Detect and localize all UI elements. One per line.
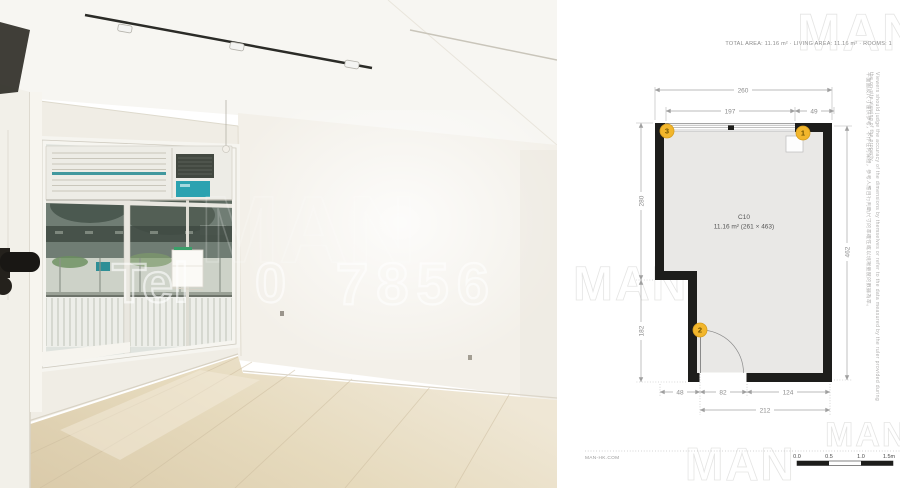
dim-label: 49	[810, 109, 818, 116]
marker-number: 3	[665, 127, 669, 136]
site-label: MAN-HK.COM	[585, 455, 619, 461]
scale-tick-label: 0.0	[793, 454, 801, 460]
scale-bar: 0.0 0.5 1.0 1.5m	[793, 454, 895, 466]
scale-tick-label: 1.5m	[883, 454, 896, 460]
floorplan-drawing: MAN MAN MAN MAN	[557, 0, 900, 488]
logo-watermark: MAN	[825, 416, 900, 454]
cabinet-top-item	[174, 247, 192, 250]
dim-label: 48	[676, 390, 684, 397]
teal-sign	[96, 262, 110, 271]
room-photo: Tel 0 7856 MAN	[0, 0, 557, 488]
floorplan-panel: TOTAL AREA: 11.16 m² · LIVING AREA: 11.1…	[557, 0, 900, 488]
dim-label: 197	[725, 109, 736, 116]
dim-label: 260	[738, 88, 749, 95]
dim-label: 280	[638, 195, 645, 206]
dim-label: 124	[783, 390, 794, 397]
dim-label: 212	[760, 408, 771, 415]
property-listing-image: Tel 0 7856 MAN TOTAL AREA: 11.16 m² · LI…	[0, 0, 900, 488]
disclaimer-text-zh: 平面圖及尺寸僅供參考，不作任何保證，參考人應自行判斷尺寸的準確性或以現場量度的數…	[865, 72, 871, 410]
marker-number: 2	[698, 326, 702, 335]
ac-teal-stripe	[52, 172, 166, 175]
door-jamb	[30, 92, 42, 412]
scale-tick-label: 0.5	[825, 454, 833, 460]
wall-corner-shade	[520, 150, 557, 400]
dim-label: 462	[844, 246, 851, 257]
logo-watermark: MAN	[685, 438, 796, 488]
dim-label: 182	[638, 325, 645, 336]
plan-window	[665, 123, 795, 131]
window-mullion-tick	[728, 126, 734, 131]
marker-number: 1	[801, 129, 805, 138]
photo-marker-1: 1	[796, 126, 810, 140]
photo-logo-watermark: MAN	[200, 177, 416, 283]
room-interior	[664, 132, 823, 373]
photo-marker-2: 2	[693, 323, 707, 337]
logo-watermark: MAN	[797, 4, 900, 62]
scale-tick-label: 1.0	[857, 454, 865, 460]
watermark-text: Tel	[112, 251, 189, 314]
wall-socket	[468, 355, 472, 360]
unit-area-label: 11.16 m² (261 × 463)	[714, 224, 774, 231]
unit-label: C10	[738, 214, 750, 221]
dim-label: 82	[719, 390, 727, 397]
photo-marker-3: 3	[660, 124, 674, 138]
